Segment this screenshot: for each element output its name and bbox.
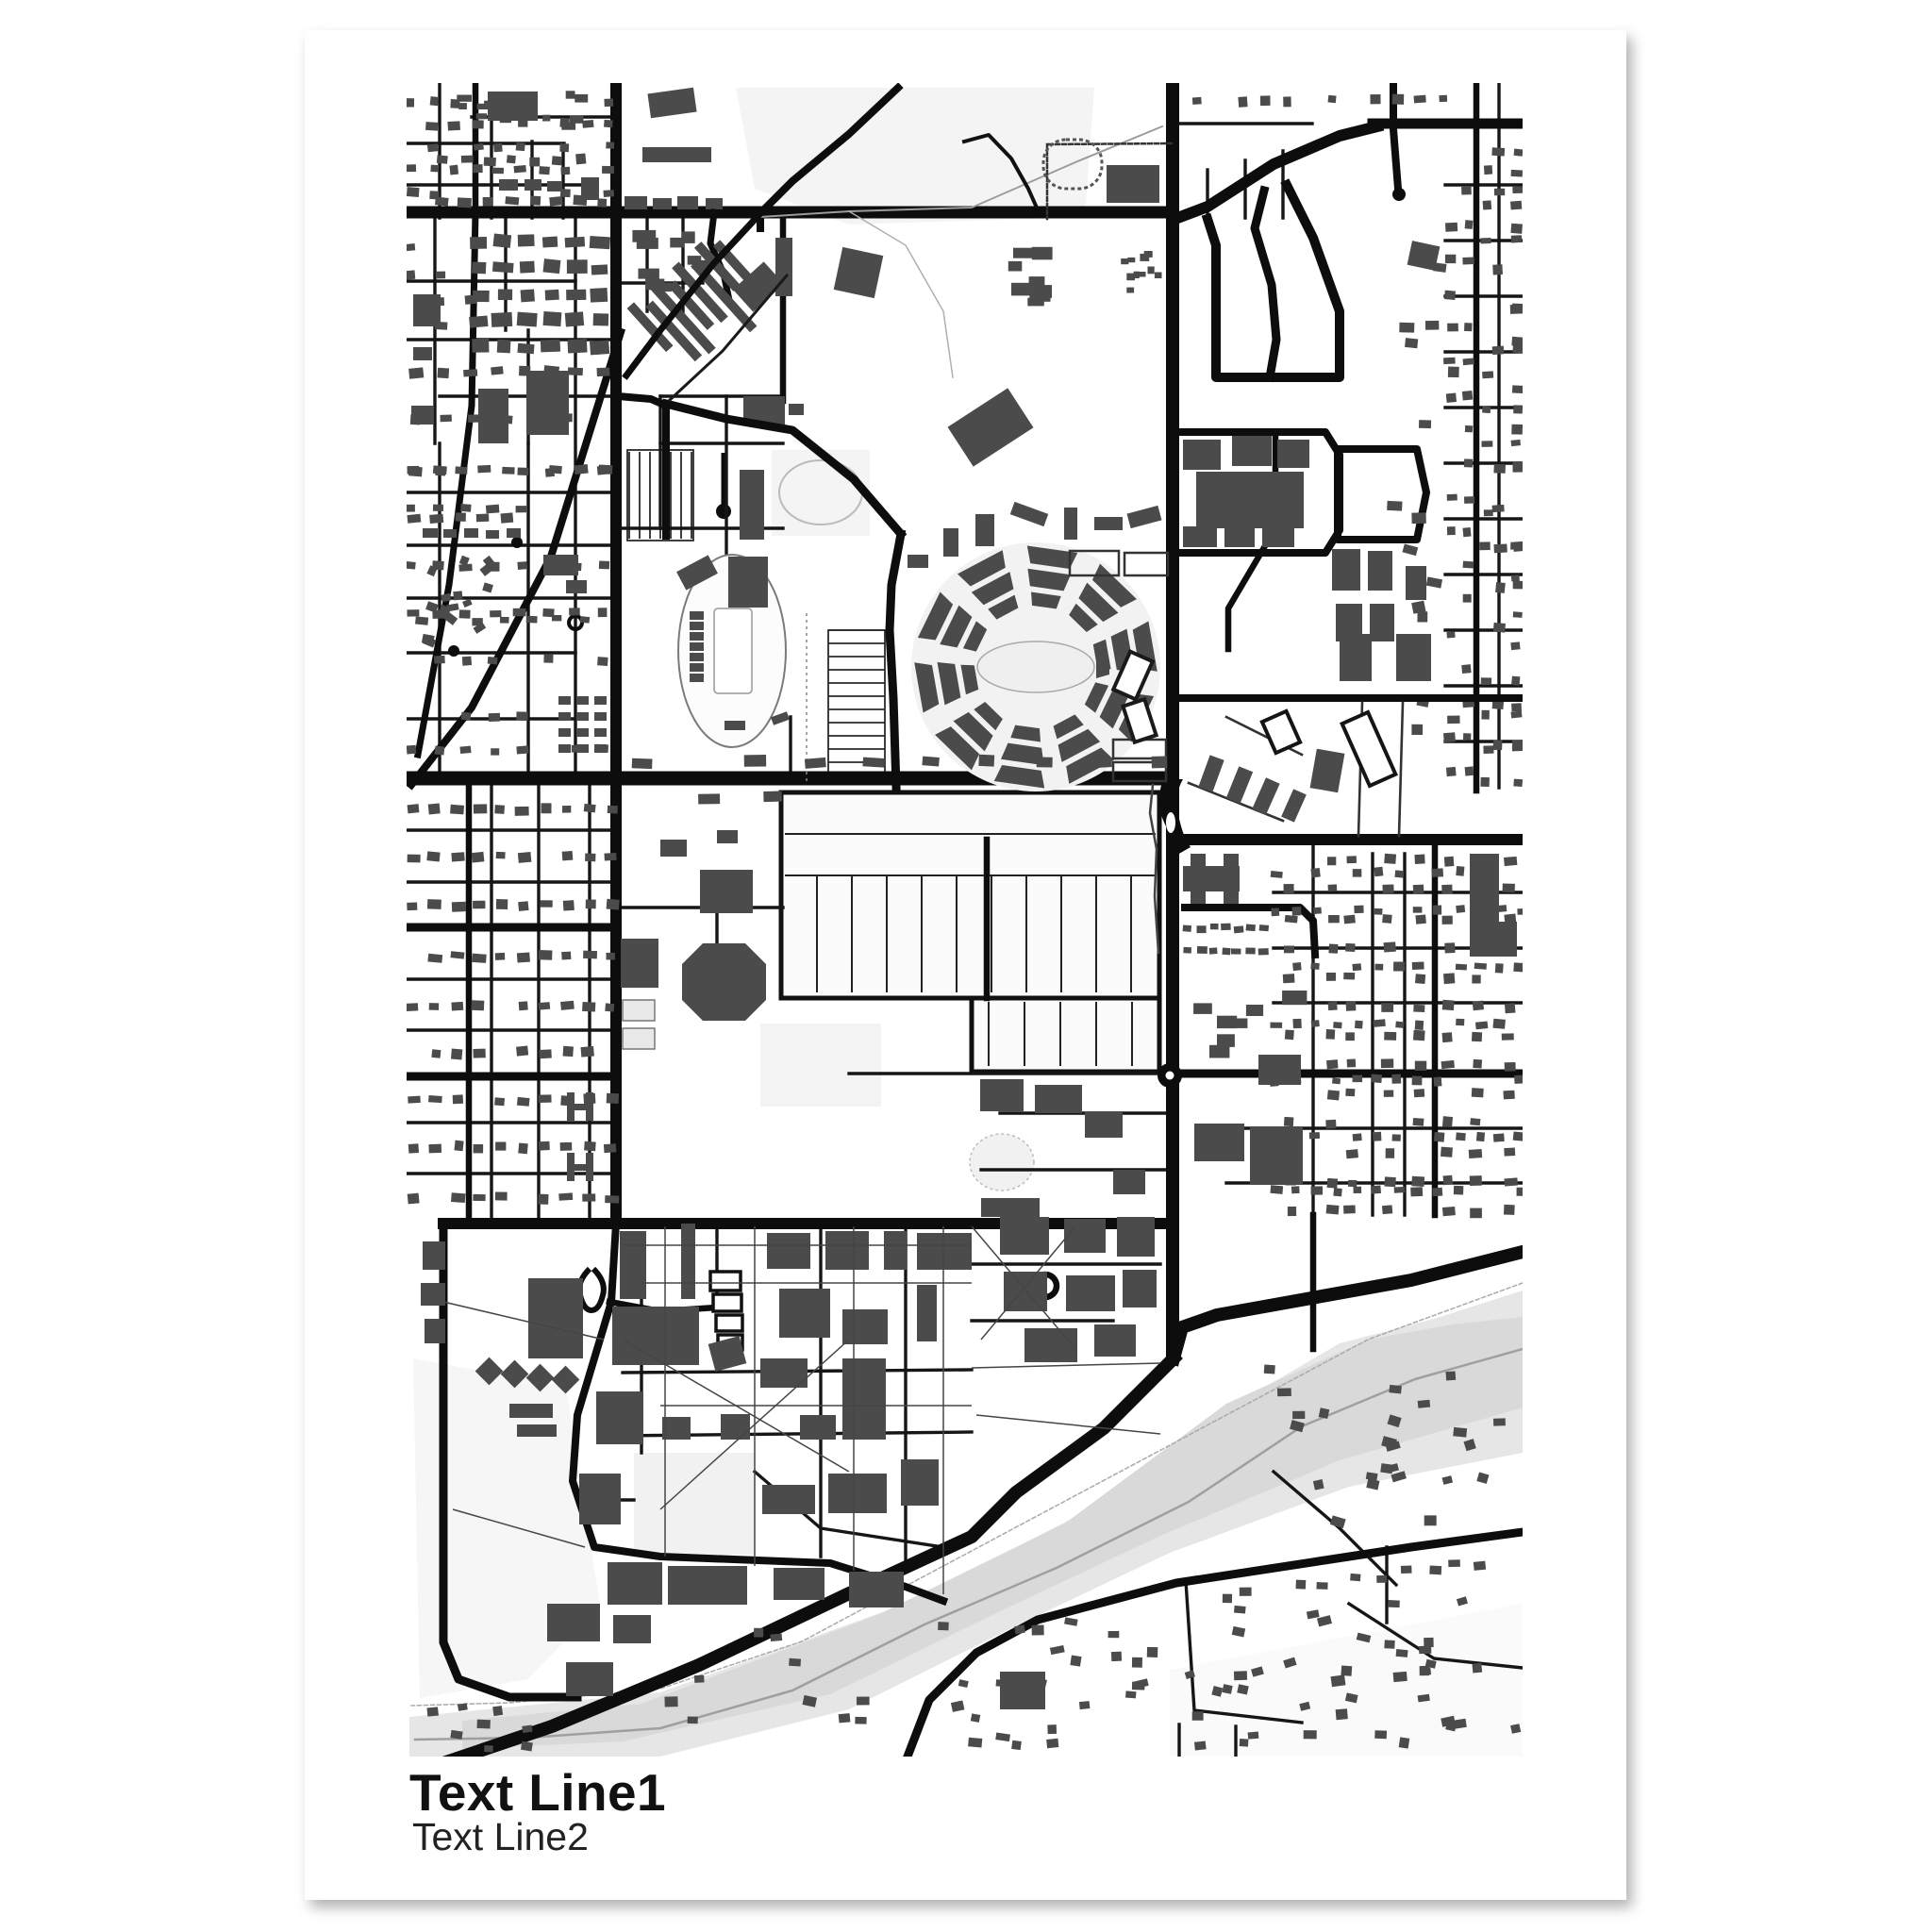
svg-text:Text Line1: Text Line1 bbox=[409, 1763, 666, 1822]
svg-text:Text Line2: Text Line2 bbox=[412, 1815, 589, 1858]
